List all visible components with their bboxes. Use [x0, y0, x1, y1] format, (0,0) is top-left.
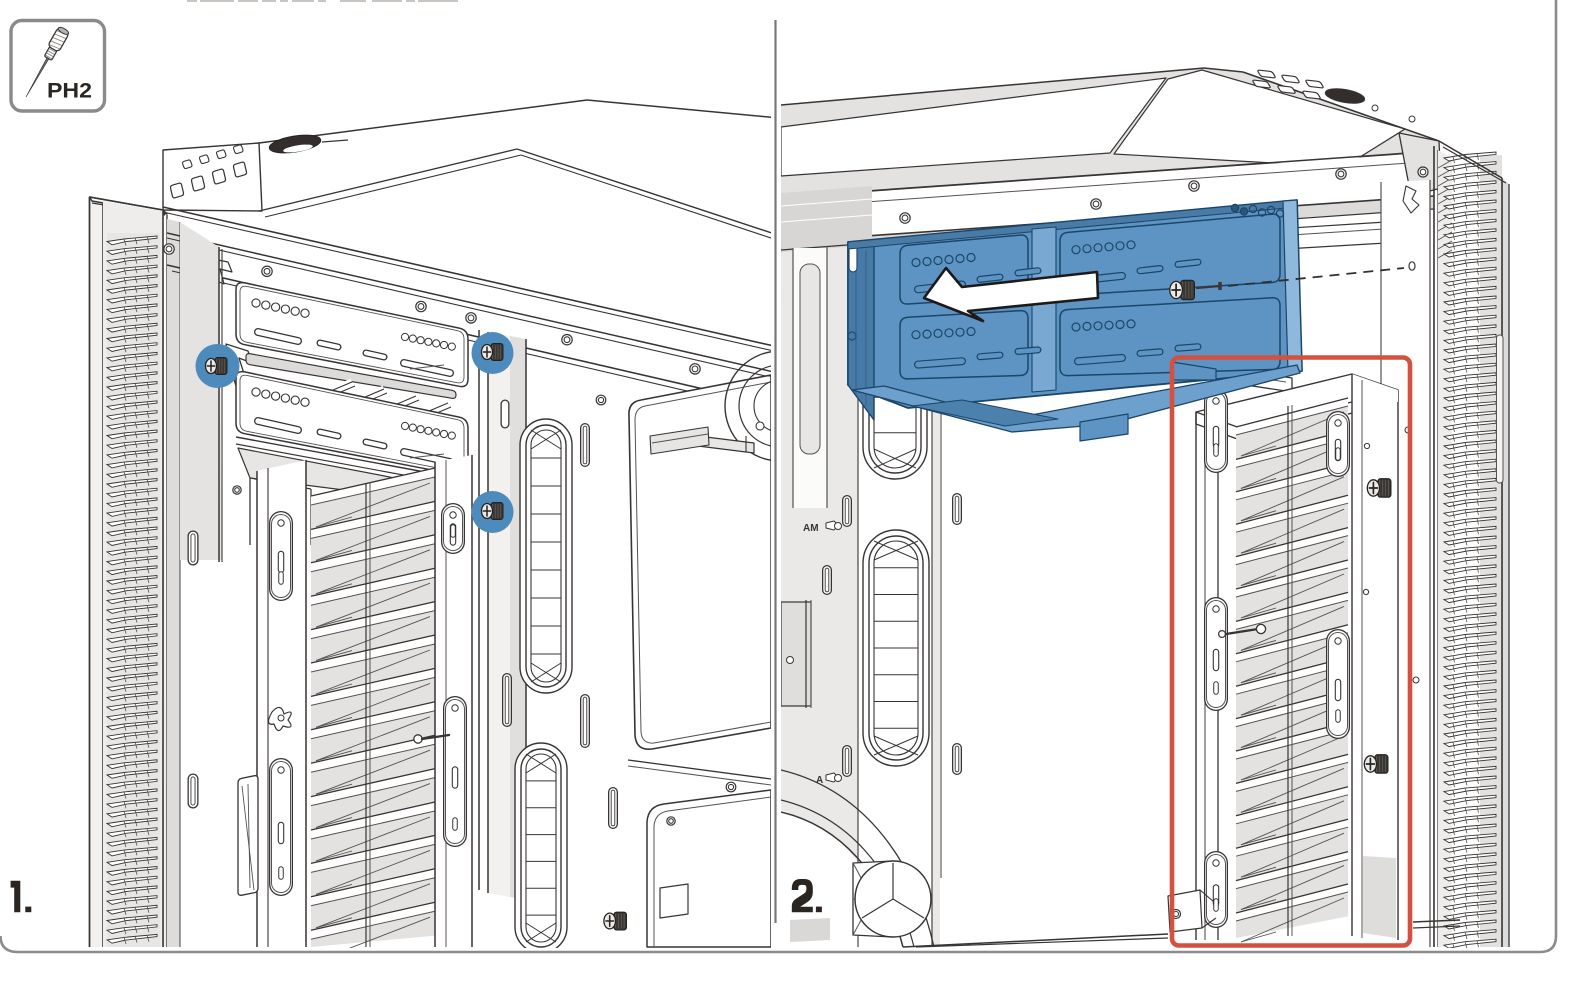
svg-text:PH2: PH2 [47, 79, 92, 103]
svg-text:AM: AM [803, 523, 819, 534]
